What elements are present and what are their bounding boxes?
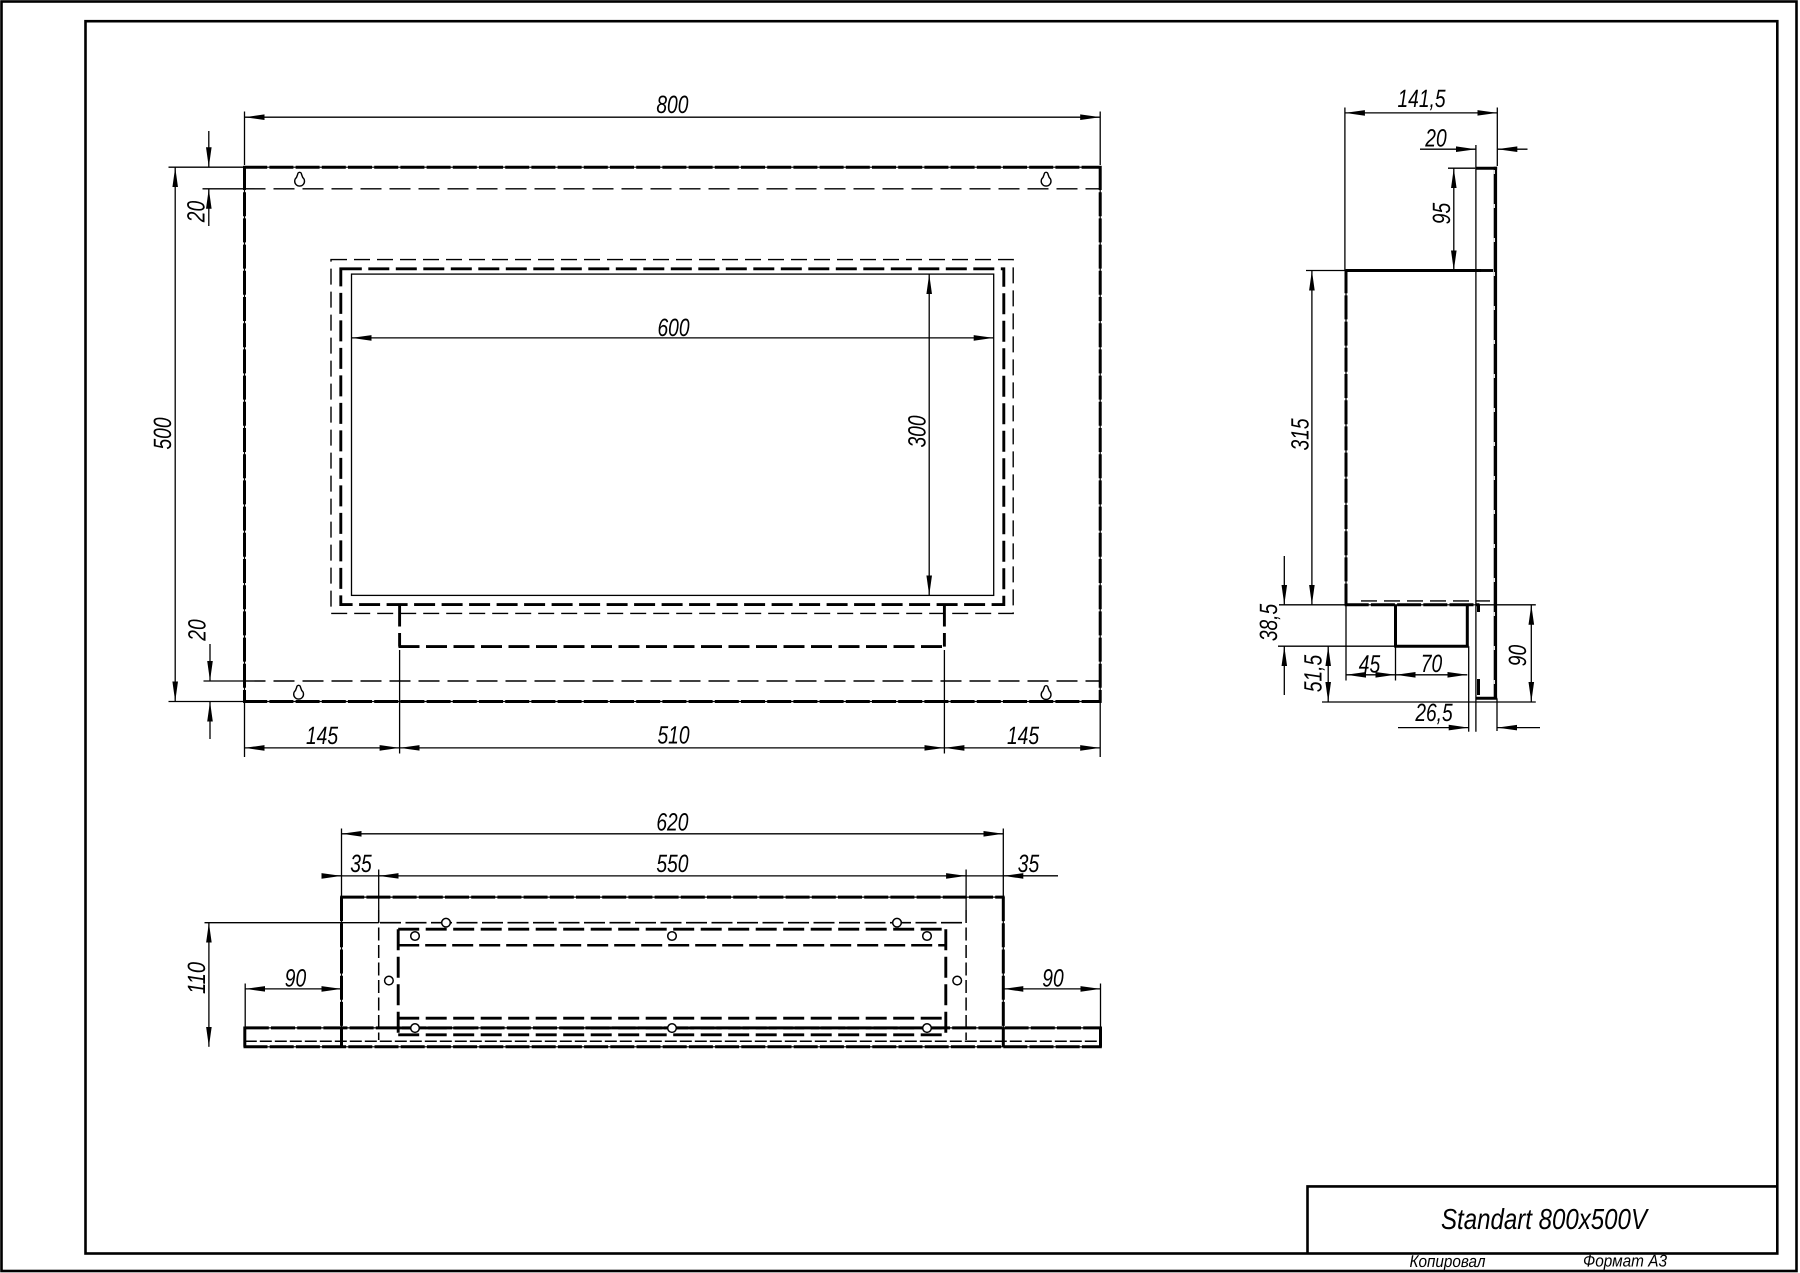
svg-text:70: 70 [1421, 650, 1442, 678]
svg-text:600: 600 [657, 314, 689, 342]
svg-text:145: 145 [306, 722, 338, 750]
svg-text:510: 510 [657, 722, 689, 750]
svg-text:110: 110 [183, 962, 211, 994]
svg-text:141,5: 141,5 [1398, 85, 1446, 113]
svg-text:800: 800 [656, 91, 688, 119]
svg-text:90: 90 [285, 965, 306, 993]
svg-text:95: 95 [1428, 203, 1456, 224]
svg-text:90: 90 [1042, 965, 1063, 993]
svg-text:45: 45 [1359, 651, 1380, 679]
svg-text:20: 20 [1425, 125, 1447, 153]
svg-text:300: 300 [904, 415, 932, 447]
svg-text:315: 315 [1287, 418, 1315, 450]
svg-text:38,5: 38,5 [1255, 604, 1283, 641]
svg-text:35: 35 [350, 850, 371, 878]
svg-text:20: 20 [183, 201, 211, 223]
svg-text:Standart 800x500V: Standart 800x500V [1441, 1204, 1649, 1236]
svg-text:26,5: 26,5 [1415, 699, 1453, 727]
svg-text:550: 550 [656, 850, 688, 878]
svg-text:620: 620 [656, 809, 688, 837]
svg-text:90: 90 [1504, 645, 1532, 666]
svg-text:145: 145 [1007, 722, 1039, 750]
svg-text:500: 500 [149, 417, 177, 449]
svg-text:Формат А3: Формат А3 [1583, 1252, 1667, 1271]
svg-text:35: 35 [1018, 850, 1039, 878]
svg-text:Копировал: Копировал [1410, 1252, 1486, 1271]
svg-text:51,5: 51,5 [1300, 655, 1328, 692]
svg-text:20: 20 [184, 619, 212, 641]
